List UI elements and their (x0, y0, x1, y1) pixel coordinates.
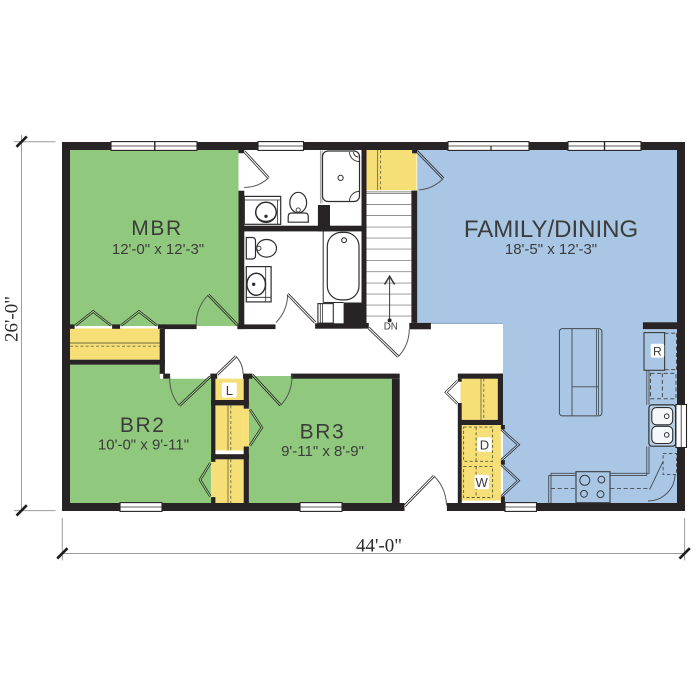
svg-text:12'-0" x 12'-3": 12'-0" x 12'-3" (112, 241, 204, 258)
svg-text:BR2: BR2 (120, 414, 166, 437)
svg-text:10'-0" x 9'-11": 10'-0" x 9'-11" (98, 437, 189, 454)
svg-text:FAMILY/DINING: FAMILY/DINING (464, 216, 638, 243)
svg-text:W: W (476, 475, 489, 490)
svg-text:R: R (653, 345, 662, 359)
svg-text:D: D (480, 437, 489, 452)
svg-text:DN: DN (384, 322, 398, 333)
svg-text:BR3: BR3 (300, 421, 346, 444)
svg-text:9'-11" x 8'-9": 9'-11" x 8'-9" (281, 443, 364, 460)
svg-text:L: L (226, 383, 233, 398)
svg-text:18'-5" x 12'-3": 18'-5" x 12'-3" (505, 241, 597, 258)
svg-text:44'-0": 44'-0" (356, 536, 402, 557)
svg-text:26'-0": 26'-0" (2, 296, 23, 342)
svg-text:MBR: MBR (131, 217, 182, 240)
